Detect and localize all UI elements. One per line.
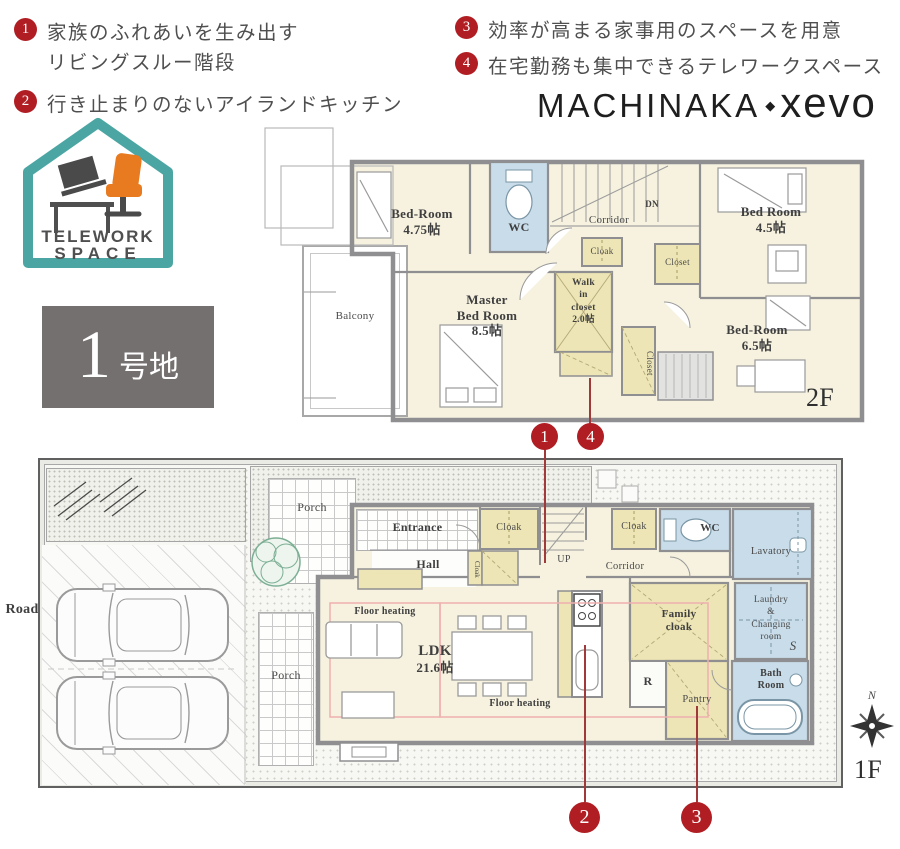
room-name: LDK [392, 642, 478, 660]
room-name: cloak [640, 621, 718, 634]
feature-item-2: 2 行き止まりのないアイランドキッチン [14, 88, 403, 117]
room-name: in [555, 289, 612, 301]
feature-number-badge: 4 [455, 52, 478, 75]
room-label-laundry: Laundry & Changing room [737, 594, 805, 643]
leader-line-1 [544, 449, 546, 563]
brand-logo-diamond-icon: ◆ [765, 98, 775, 114]
office-chair-icon [106, 152, 142, 214]
flyer-page: 1 家族のふれあいを生み出す リビングスルー階段 2 行き止まりのないアイランド… [0, 0, 900, 849]
porch-top-tiles [268, 478, 356, 584]
badge-line1: TELEWORK [41, 227, 154, 246]
marker-circle-2: 2 [569, 802, 600, 833]
room-label-wc-1f: WC [692, 522, 728, 535]
room-label-master-bedroom: Master Bed Room 8.5帖 [427, 292, 547, 339]
leader-line-4 [589, 378, 591, 424]
brand-logo: MACHINAKA ◆ xevo [537, 86, 877, 125]
feature-number-badge: 1 [14, 18, 37, 41]
feature-item-1: 1 家族のふれあいを生み出す [14, 16, 299, 45]
room-label-family-cloak: Family cloak [640, 608, 718, 634]
balcony-area [302, 245, 408, 417]
compass-icon [850, 704, 894, 748]
marker-circle-4: 4 [577, 423, 604, 450]
feature-text: 行き止まりのないアイランドキッチン [47, 88, 403, 117]
refrigerator-r-label: R [632, 674, 664, 688]
lot-number-plate: 1 号地 [42, 306, 214, 408]
room-size: 4.5帖 [712, 220, 830, 236]
floor-heating-label-2: Floor heating [455, 698, 585, 710]
room-name: Master [427, 292, 547, 308]
marker-circle-1: 1 [531, 423, 558, 450]
leader-line-3 [696, 706, 698, 802]
shelf-s-label: S [782, 638, 804, 654]
feature-number-badge: 2 [14, 90, 37, 113]
room-label-pantry: Pantry [668, 694, 726, 707]
room-name: Bed-Room [364, 206, 480, 222]
room-label-porch-top: Porch [268, 500, 356, 514]
room-name: Walk [555, 277, 612, 289]
room-label-corridor-2f: Corridor [570, 214, 648, 227]
room-size: 2.0帖 [555, 314, 612, 326]
room-name: Laundry [737, 594, 805, 606]
feature-text: 家族のふれあいを生み出す [47, 16, 299, 45]
laptop-desk-icon [50, 154, 114, 233]
room-size: 6.5帖 [697, 338, 817, 354]
room-size: 21.6帖 [392, 660, 478, 676]
room-name: Bed-Room [697, 322, 817, 338]
leader-line-2 [584, 645, 586, 802]
stairs-dn-label: DN [638, 199, 666, 210]
porch-left-tiles [258, 612, 314, 766]
marker-circle-3: 3 [681, 802, 712, 833]
room-label-hall: Hall [398, 557, 458, 571]
room-label-entrance: Entrance [360, 520, 475, 534]
room-name: Family [640, 608, 718, 621]
room-label-porch-left: Porch [258, 668, 314, 682]
room-label-walkin-closet: Walk in closet 2.0帖 [555, 277, 612, 326]
feature-text-line2: リビングスルー階段 [47, 52, 387, 75]
lot-suffix: 号地 [119, 342, 179, 386]
house-outline-icon [28, 123, 168, 263]
driveway [42, 545, 246, 785]
room-label-cloak-2f: Cloak [581, 246, 623, 257]
lot-number: 1 [77, 306, 111, 402]
badge-line2: SPACE [54, 244, 141, 263]
room-label-bedroom1: Bed-Room 4.75帖 [364, 206, 480, 237]
room-name: Bath [740, 668, 802, 680]
feature-text: 効率が高まる家事用のスペースを用意 [488, 14, 843, 43]
room-name: Changing [737, 619, 805, 631]
room-name: & [737, 606, 805, 618]
room-label-bathroom: Bath Room [740, 668, 802, 692]
floor2-label: 2F [790, 382, 850, 413]
brand-logo-left: MACHINAKA [537, 87, 760, 125]
feature-item-3: 3 効率が高まる家事用のスペースを用意 [455, 14, 843, 43]
feature-number-badge: 3 [455, 16, 478, 39]
brand-logo-right: xevo [780, 86, 877, 120]
room-label-bedroom3: Bed-Room 6.5帖 [697, 322, 817, 353]
room-label-closet1: Closet [654, 257, 701, 268]
room-label-closet2: Closet [622, 334, 655, 392]
room-name: Bed Room [427, 308, 547, 324]
room-label-lavatory: Lavatory [732, 546, 810, 559]
room-name: Room [740, 680, 802, 692]
room-label-corridor-1f: Corridor [592, 561, 658, 574]
room-label-wc-2f: WC [490, 220, 548, 234]
room-label-ldk: LDK 21.6帖 [392, 642, 478, 676]
feature-text: 在宅勤務も集中できるテレワークスペース [488, 50, 884, 79]
room-size: 8.5帖 [427, 323, 547, 339]
compass-n-label: N [862, 688, 882, 702]
floor-heating-label-1: Floor heating [332, 606, 438, 618]
room-name: closet [555, 302, 612, 314]
feature-item-4: 4 在宅勤務も集中できるテレワークスペース [455, 50, 884, 79]
planting-pad [46, 468, 246, 542]
room-label-cloak2: Cloak [469, 554, 481, 584]
room-name: Bed Room [712, 204, 830, 220]
floor1-label: 1F [842, 754, 894, 785]
room-label-cloak1: Cloak [480, 522, 538, 534]
room-label-balcony: Balcony [303, 310, 407, 323]
room-label-bedroom2: Bed Room 4.5帖 [712, 204, 830, 235]
room-label-cloak3: Cloak [612, 521, 656, 533]
telework-badge: TELEWORK SPACE [20, 116, 176, 272]
stairs-up-label: UP [544, 554, 584, 566]
road-label: Road [0, 602, 44, 619]
room-size: 4.75帖 [364, 222, 480, 238]
